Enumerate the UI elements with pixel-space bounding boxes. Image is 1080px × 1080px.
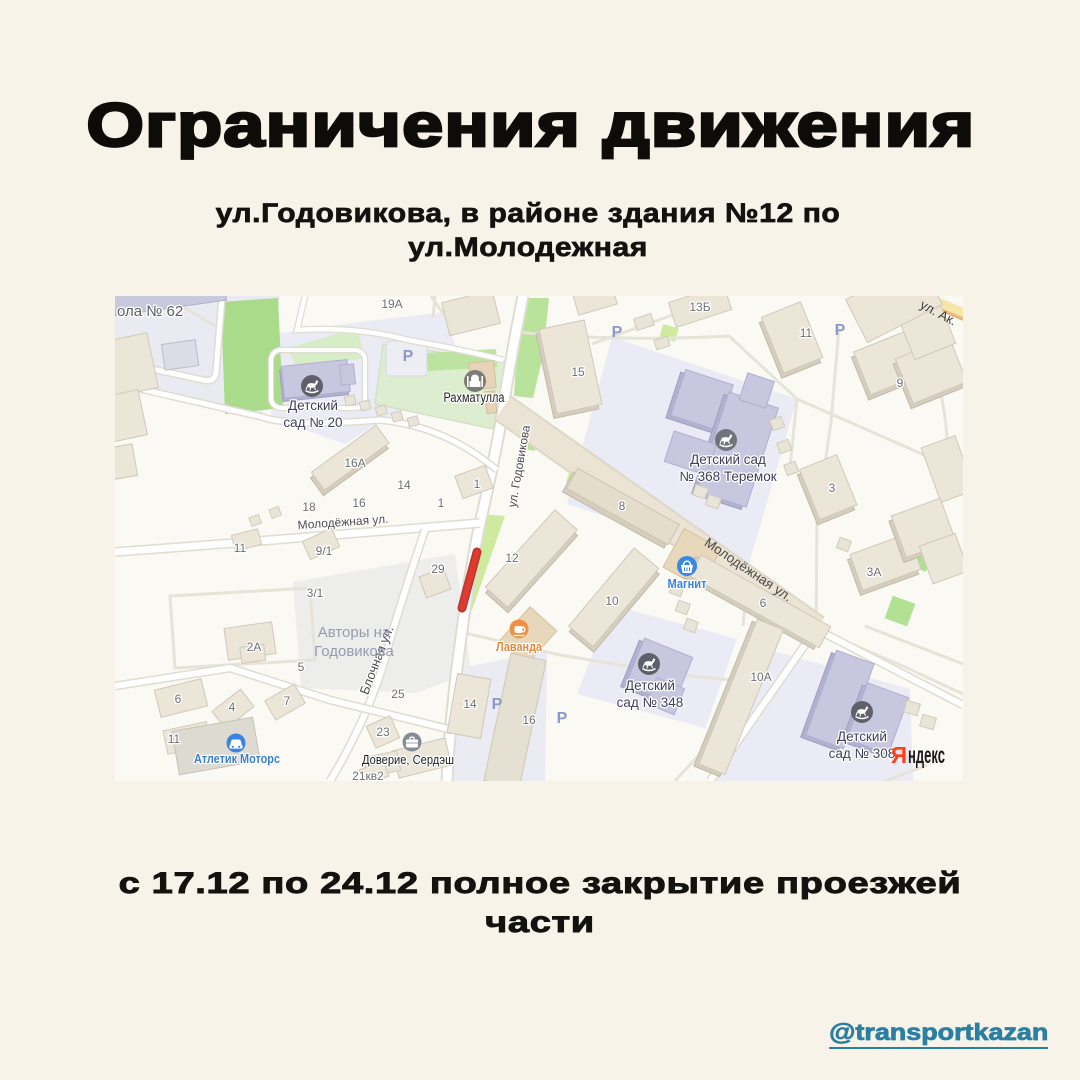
svg-text:11: 11 xyxy=(168,732,181,746)
svg-text:13Б: 13Б xyxy=(689,300,710,314)
svg-text:Атлетик Моторс: Атлетик Моторс xyxy=(194,751,280,766)
svg-text:19А: 19А xyxy=(381,297,402,311)
svg-text:14: 14 xyxy=(463,697,477,711)
svg-text:сад № 20: сад № 20 xyxy=(283,415,342,430)
svg-text:23: 23 xyxy=(376,725,390,739)
svg-text:7: 7 xyxy=(284,694,291,708)
svg-text:Магнит: Магнит xyxy=(668,577,707,591)
svg-text:16А: 16А xyxy=(344,456,365,470)
svg-text:Р: Р xyxy=(557,710,568,727)
svg-text:16: 16 xyxy=(522,713,536,727)
svg-text:Годовикова: Годовикова xyxy=(314,643,394,660)
svg-text:Р: Р xyxy=(835,322,846,339)
svg-text:18: 18 xyxy=(302,500,316,514)
svg-text:Р: Р xyxy=(612,324,623,341)
svg-text:Рахматулла: Рахматулла xyxy=(444,390,505,405)
svg-text:4: 4 xyxy=(229,700,236,714)
svg-text:Р: Р xyxy=(492,696,503,713)
svg-text:11: 11 xyxy=(800,326,813,340)
svg-text:Р: Р xyxy=(403,348,414,365)
svg-text:1: 1 xyxy=(474,477,481,491)
svg-text:14: 14 xyxy=(397,478,411,492)
svg-text:ола № 62: ола № 62 xyxy=(117,303,183,320)
svg-text:Авторы на: Авторы на xyxy=(318,624,391,641)
svg-text:сад № 348: сад № 348 xyxy=(617,695,684,710)
svg-text:25: 25 xyxy=(391,687,405,701)
svg-text:10: 10 xyxy=(605,594,619,608)
svg-text:29: 29 xyxy=(431,562,445,576)
svg-text:Я: Я xyxy=(891,742,907,768)
svg-text:5: 5 xyxy=(298,660,305,674)
svg-text:10А: 10А xyxy=(750,670,771,684)
svg-text:3А: 3А xyxy=(867,565,882,579)
svg-text:16: 16 xyxy=(352,496,366,510)
svg-text:№ 368 Теремок: № 368 Теремок xyxy=(679,469,776,484)
svg-text:12: 12 xyxy=(505,551,519,565)
svg-text:6: 6 xyxy=(175,692,182,706)
svg-text:3/1: 3/1 xyxy=(307,586,324,600)
svg-text:2А: 2А xyxy=(247,640,262,654)
svg-text:сад № 308: сад № 308 xyxy=(829,746,896,761)
svg-text:1: 1 xyxy=(438,496,445,510)
svg-text:21кв2: 21кв2 xyxy=(352,769,384,781)
svg-text:Доверие, Сердэш: Доверие, Сердэш xyxy=(362,752,454,767)
svg-text:15: 15 xyxy=(571,365,585,379)
svg-text:9: 9 xyxy=(897,376,904,390)
svg-text:9/1: 9/1 xyxy=(316,544,333,558)
svg-text:Детский: Детский xyxy=(625,678,675,693)
svg-text:8: 8 xyxy=(619,499,626,513)
svg-text:Детский: Детский xyxy=(288,398,338,413)
svg-text:6: 6 xyxy=(760,596,767,610)
svg-text:3: 3 xyxy=(829,481,836,495)
svg-text:Детский: Детский xyxy=(837,729,887,744)
svg-text:Детский сад: Детский сад xyxy=(690,452,766,467)
svg-text:ндекс: ндекс xyxy=(908,742,945,768)
svg-text:11: 11 xyxy=(234,541,247,555)
svg-text:Лаванда: Лаванда xyxy=(496,639,543,654)
